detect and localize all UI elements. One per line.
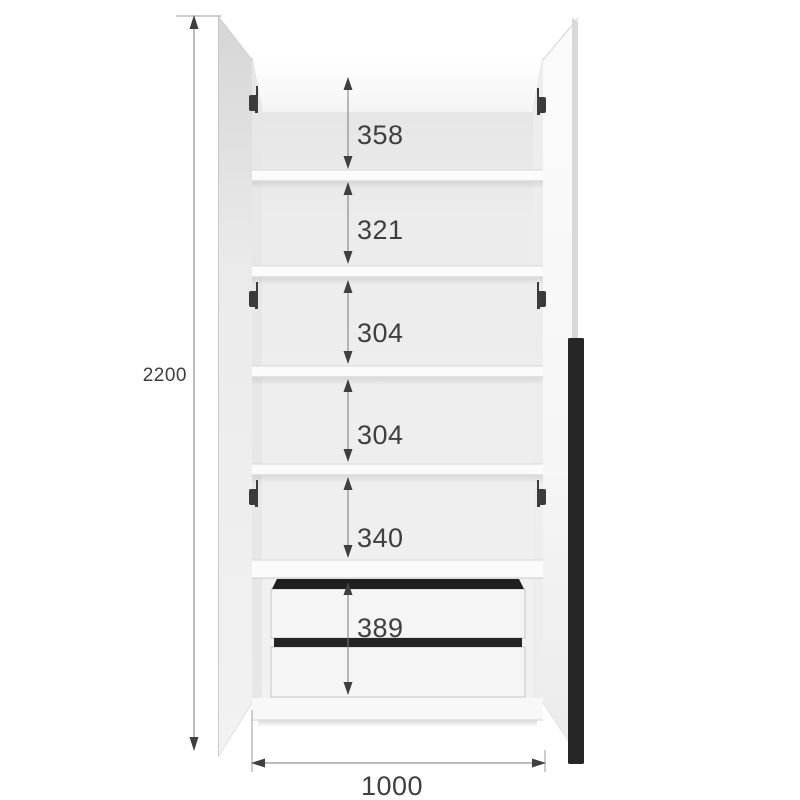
shelf <box>252 170 543 189</box>
height-dimension: 2200 <box>143 15 221 751</box>
left-door <box>218 16 252 757</box>
dimension-label: 2200 <box>143 365 187 386</box>
arrowhead-down-icon <box>190 737 199 751</box>
plinth-shadow <box>258 720 537 727</box>
shelf <box>252 560 543 578</box>
door-handle <box>568 338 584 764</box>
dimension-label: 358 <box>357 120 404 150</box>
cabinet-bottom <box>252 698 543 720</box>
shelf <box>252 266 543 285</box>
wardrobe-drawing: 2200 1000 358 321 304 304 340 <box>0 0 800 800</box>
arrowhead-up-icon <box>190 15 199 29</box>
interior-right-wall <box>533 57 543 720</box>
dimension-label: 340 <box>357 523 404 553</box>
right-door <box>543 18 584 764</box>
dimension-label: 1000 <box>361 771 423 800</box>
dimension-label: 389 <box>357 613 404 643</box>
dimension-label: 304 <box>357 420 404 450</box>
arrowhead-right-icon <box>532 759 546 768</box>
arrowhead-left-icon <box>251 759 265 768</box>
shelf <box>252 366 543 385</box>
drawer-gap <box>272 579 524 589</box>
interior-ceiling <box>252 57 543 112</box>
wardrobe-diagram: 2200 1000 358 321 304 304 340 <box>0 0 800 800</box>
dimension-label: 321 <box>357 215 404 245</box>
drawer-unit <box>252 579 543 727</box>
interior-left-wall <box>252 57 262 720</box>
dimension-label: 304 <box>357 318 404 348</box>
shelf <box>252 464 543 483</box>
drawer-front <box>271 647 525 697</box>
